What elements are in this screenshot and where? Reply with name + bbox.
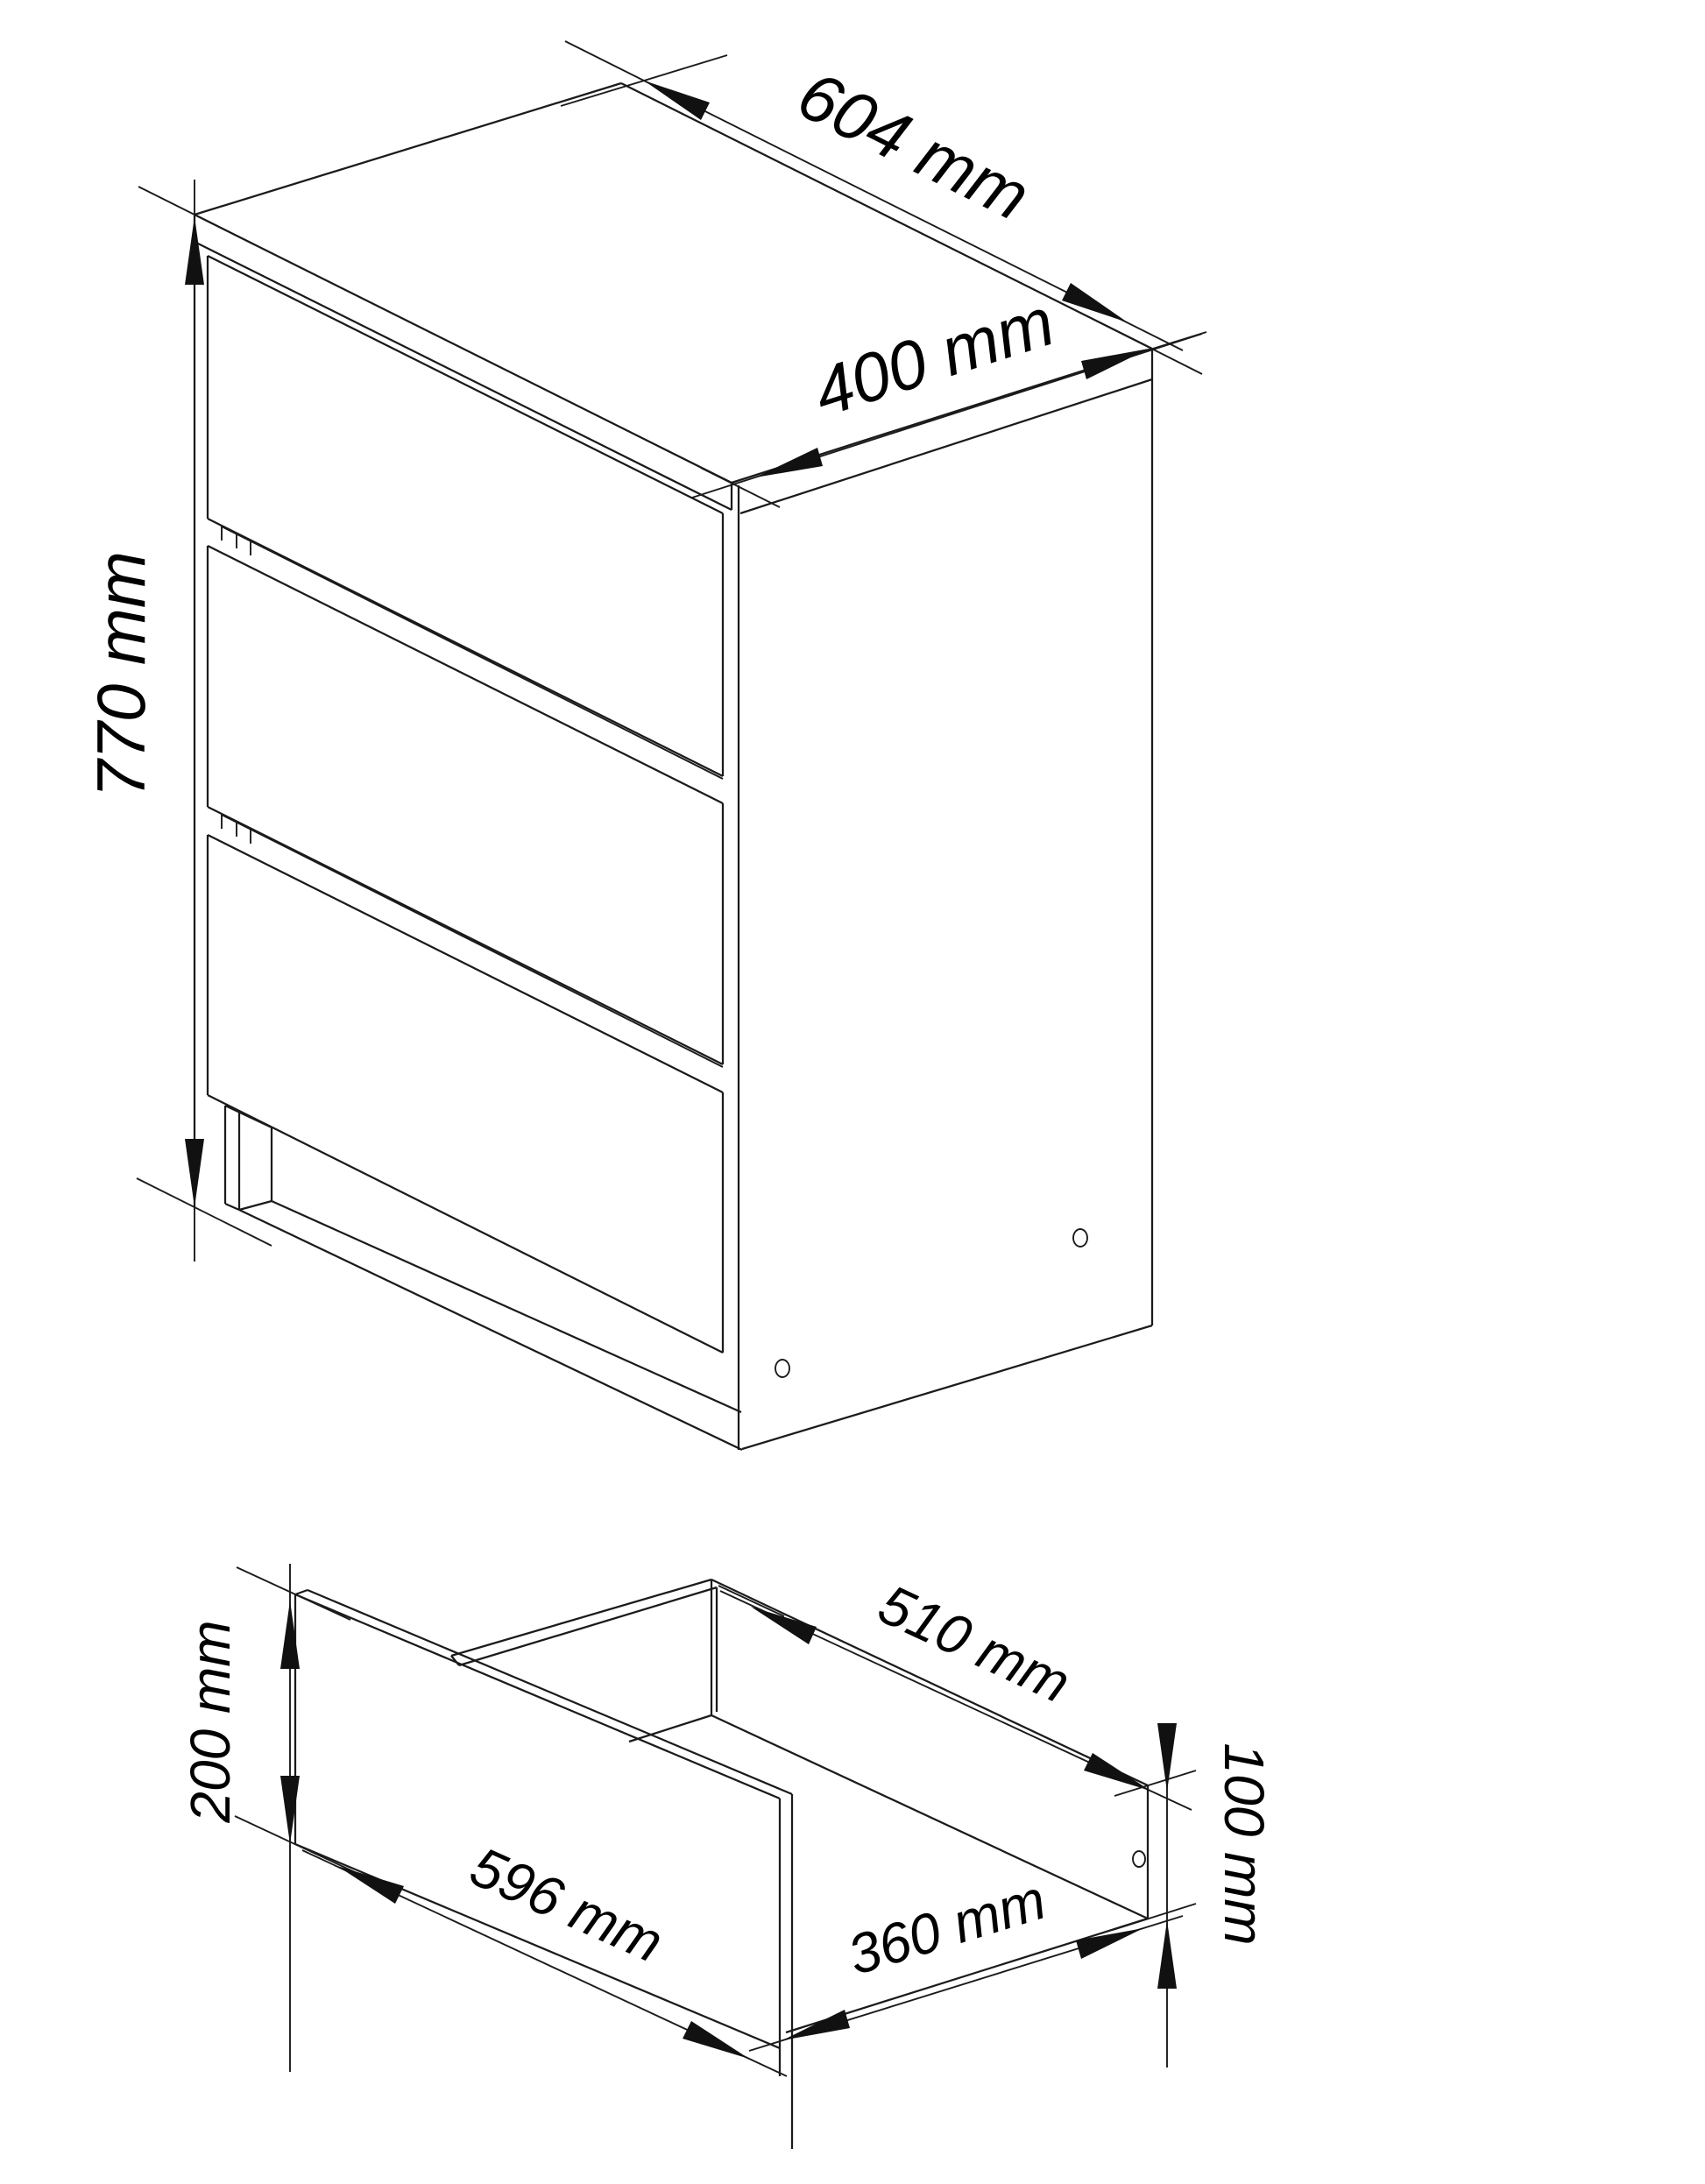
- cabinet-foot: [225, 1106, 742, 1450]
- dim-label-drawer-side-depth: 510 mm: [869, 1573, 1079, 1715]
- technical-drawing: 604 mm 400 mm 770 mm: [0, 0, 1705, 2184]
- arrowhead: [683, 2021, 749, 2059]
- dimension-cabinet-width: 604 mm: [561, 41, 1206, 374]
- arrowhead: [751, 1607, 817, 1644]
- side-panel-hole-lower: [775, 1360, 789, 1377]
- arrowhead: [1084, 1753, 1150, 1791]
- drawer-gap-1: [222, 527, 723, 779]
- dimension-drawer-side-depth: 510 mm: [718, 1573, 1192, 1810]
- dimension-cabinet-depth: 400 mm: [692, 282, 1202, 507]
- cabinet-carcass: [195, 83, 1152, 1450]
- cabinet-drawer-2: [208, 546, 723, 1064]
- arrowhead: [280, 1601, 300, 1669]
- dimension-drawer-front-width: 596 mm: [302, 1834, 787, 2076]
- arrowhead: [755, 448, 823, 477]
- arrowhead: [1062, 283, 1128, 322]
- dim-label-drawer-front-height: 200 mm: [179, 1620, 242, 1823]
- dimension-drawer-side-height: 100 mm: [1113, 1723, 1276, 2067]
- dimension-drawer-front-height: 200 mm: [179, 1564, 368, 2072]
- arrowhead: [1157, 1920, 1177, 1989]
- drawer-back-panel: [451, 1580, 717, 1742]
- arrowhead: [1076, 1928, 1143, 1959]
- drawing-sheet: 604 mm 400 mm 770 mm: [0, 0, 1705, 2184]
- dim-label-drawer-front-width: 596 mm: [462, 1834, 672, 1975]
- cabinet-drawer-3: [208, 835, 723, 1353]
- arrowhead: [185, 216, 204, 285]
- arrowhead: [337, 1866, 404, 1904]
- dim-label-cabinet-width: 604 mm: [786, 55, 1041, 235]
- dimension-cabinet-height: 770 mm: [82, 180, 272, 1262]
- dim-label-drawer-side-height: 100 mm: [1213, 1742, 1276, 1945]
- cabinet-drawer-1: [208, 256, 723, 776]
- drawer-gap-2: [222, 815, 723, 1067]
- dim-label-cabinet-height: 770 mm: [82, 551, 159, 798]
- drawer-side-hole: [1133, 1851, 1145, 1867]
- arrowhead: [280, 1776, 300, 1844]
- arrowhead: [185, 1139, 204, 1207]
- dim-label-cabinet-depth: 400 mm: [804, 282, 1063, 431]
- side-panel-hole-upper: [1073, 1229, 1087, 1247]
- arrowhead: [1081, 349, 1149, 379]
- drawer-view: 200 mm 596 mm 510 mm 360 mm: [179, 1564, 1276, 2149]
- cabinet-view: 604 mm 400 mm 770 mm: [82, 41, 1206, 1450]
- dim-label-drawer-bottom-depth: 360 mm: [840, 1868, 1052, 1987]
